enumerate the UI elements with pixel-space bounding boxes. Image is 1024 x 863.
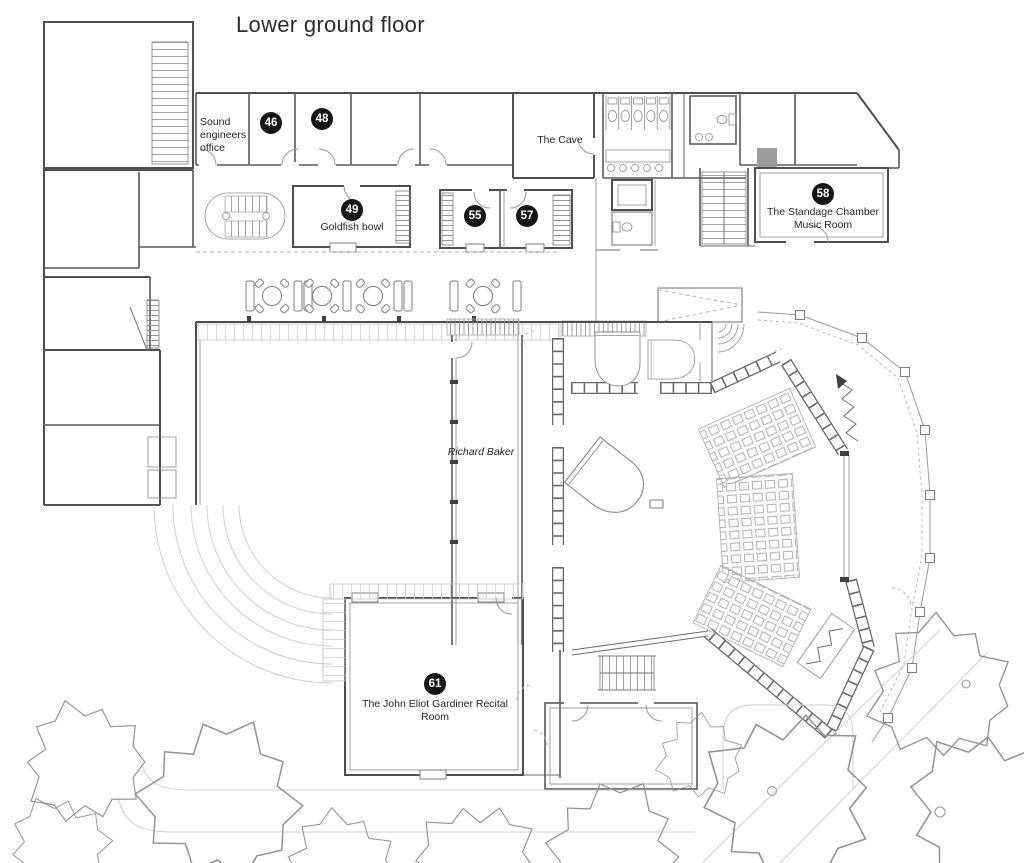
tree-trunk — [935, 807, 945, 817]
label-sound-engineers-office: Sound engineers office — [200, 116, 258, 154]
bench — [450, 281, 458, 311]
bench — [343, 281, 351, 311]
room-marker-58: 58 — [812, 183, 834, 205]
grand-piano-icon — [595, 332, 640, 386]
cafe-table — [355, 278, 390, 313]
cafe-table — [254, 278, 289, 313]
label-the-cave: The Cave — [537, 134, 583, 147]
bench — [394, 281, 402, 311]
toilet-icons — [608, 98, 668, 122]
page-title: Lower ground floor — [236, 12, 425, 38]
stage-stair-unit — [797, 613, 854, 678]
curved-stair — [205, 193, 285, 239]
bench — [246, 281, 254, 311]
left-wing — [44, 22, 196, 505]
corridor-furniture — [246, 278, 521, 313]
room-marker-61: 61 — [424, 673, 446, 695]
grand-piano-icon — [648, 340, 695, 379]
seating-bank-upper — [698, 388, 815, 487]
room-marker-55: 55 — [464, 205, 486, 227]
label-gardiner-recital-room: The John Eliot Gardiner Recital Room — [355, 698, 515, 724]
south-rooms — [323, 584, 697, 789]
tree-trunk — [962, 680, 970, 688]
seating-bank-lower — [693, 565, 811, 666]
zigzag-diffuser — [840, 382, 858, 441]
room-marker-46: 46 — [260, 112, 282, 134]
seating-bank-middle — [716, 473, 799, 582]
ramp — [658, 288, 742, 322]
room-marker-49: 49 — [341, 199, 363, 221]
label-richard-baker: Richard Baker — [448, 446, 515, 459]
floor-plan-drawing — [0, 0, 1024, 863]
bench — [294, 281, 302, 311]
bench — [513, 281, 521, 311]
label-goldfish-bowl: Goldfish bowl — [320, 221, 383, 234]
basin-icons — [608, 165, 663, 172]
room-marker-57: 57 — [516, 205, 538, 227]
label-standage-chamber-music-room: The Standage Chamber Music Room — [753, 206, 893, 232]
bench — [404, 281, 412, 311]
north-stair — [700, 168, 755, 246]
cafe-table — [465, 278, 500, 313]
curved-steps — [154, 505, 332, 683]
stage-piano-icon — [565, 437, 655, 525]
piano-stool — [650, 500, 663, 508]
floor-plan-page: Lower ground floor Sound engineers offic… — [0, 0, 1024, 863]
room-marker-48: 48 — [311, 108, 333, 130]
